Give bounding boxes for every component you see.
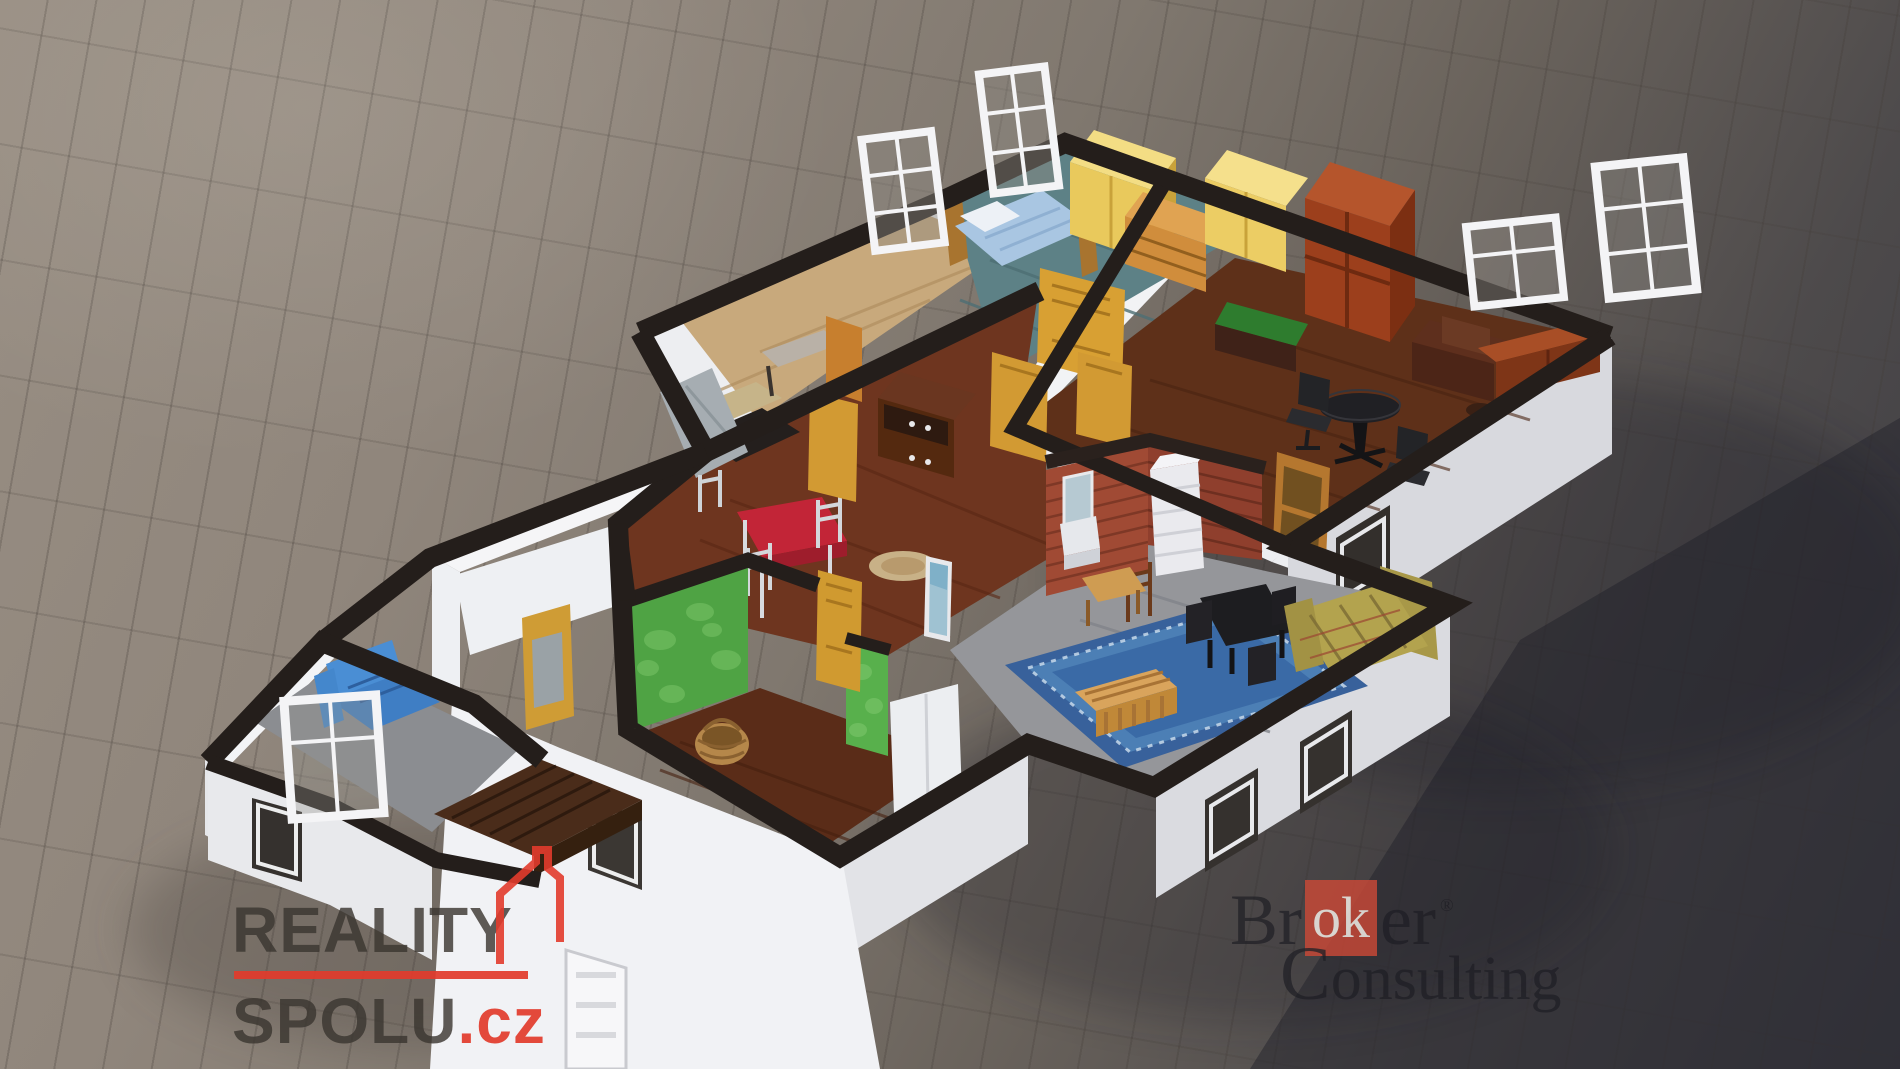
window-office: [1466, 218, 1564, 307]
round-table-top: [1320, 393, 1400, 423]
dark-chair-1: [1186, 600, 1212, 644]
broker-line2-cap: C: [1280, 932, 1331, 1016]
window-back-left: [862, 131, 945, 251]
dark-chair-2: [1248, 642, 1276, 686]
window-balcony-rail: [284, 695, 384, 819]
broker-registered-mark: ®: [1440, 896, 1454, 914]
reality-line2: SPOLU: [232, 985, 457, 1057]
tiled-stove: [1150, 462, 1204, 576]
reality-house-outline-icon: [492, 842, 572, 972]
floorplan-render: REALITY SPOLU.cz Br ok er ® Consulting: [0, 0, 1900, 1069]
window-top-right: [1595, 158, 1696, 298]
reality-red-bar: [234, 971, 528, 979]
broker-consulting-watermark: Br ok er ® Consulting: [1230, 880, 1562, 1012]
window-back-mid: [979, 66, 1059, 193]
reality-tld: .cz: [457, 985, 545, 1057]
broker-line2-rest: onsulting: [1331, 945, 1562, 1013]
hall-door-2: [1076, 352, 1132, 448]
